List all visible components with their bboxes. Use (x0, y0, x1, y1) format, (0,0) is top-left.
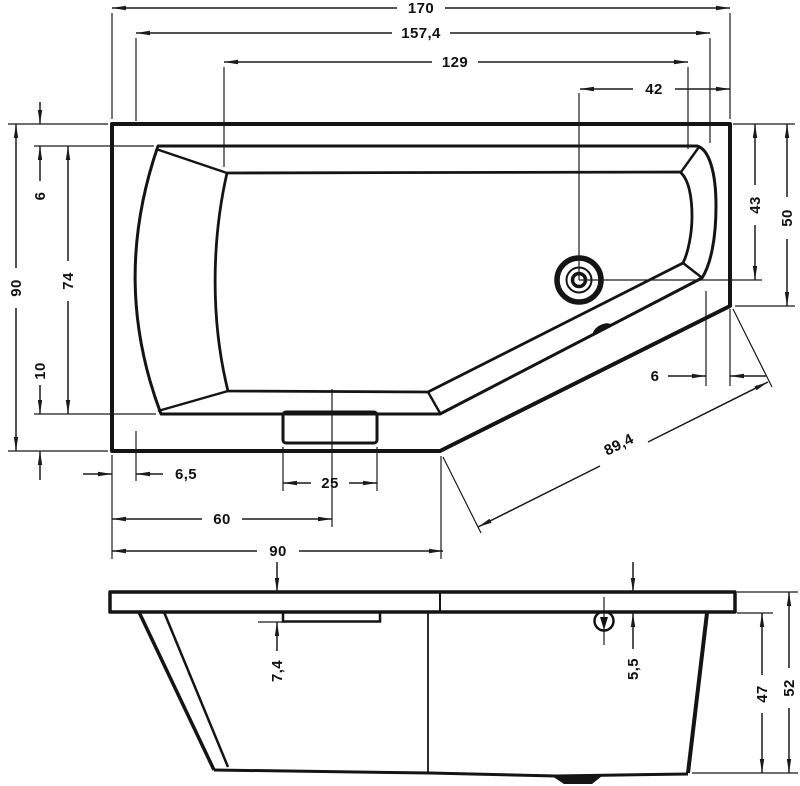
dim-panel-center-offset: 60 (112, 511, 332, 528)
dim-label: 5,5 (625, 658, 642, 680)
dim-label: 157,4 (401, 25, 441, 42)
dim-label: 74 (60, 272, 77, 290)
front-view: 7,4 5,5 47 52 (110, 562, 798, 784)
dim-bowl-width: 129 (224, 54, 688, 71)
faucet-hole-marker (595, 597, 614, 645)
dim-total-height: 52 (781, 592, 798, 773)
technical-drawing-canvas: 170 157,4 129 42 90 74 (0, 0, 800, 786)
bathtub-drawing: 170 157,4 129 42 90 74 (0, 0, 800, 786)
dim-overall-depth: 90 (8, 124, 25, 451)
front-view-extension-lines (258, 592, 798, 773)
dim-rim-thickness: 5,5 (625, 562, 642, 680)
dim-label: 90 (8, 279, 25, 297)
dim-label: 6 (651, 368, 660, 385)
dim-diagonal-rim-width: 6 (651, 368, 766, 385)
dim-overall-width: 170 (112, 0, 730, 17)
dim-bowl-opening-depth: 74 (60, 146, 77, 414)
dim-label: 42 (645, 81, 663, 98)
dim-rim-top-width: 6 (32, 102, 49, 200)
front-bottom-edge (214, 770, 688, 776)
dim-drain-from-right: 42 (580, 81, 730, 98)
dim-label: 7,4 (269, 660, 286, 682)
dim-bottom-edge-length: 90 (112, 543, 443, 560)
front-right-edge (688, 613, 707, 773)
dim-label: 47 (754, 685, 771, 703)
dim-right-side-height: 50 (779, 124, 796, 306)
dim-label: 25 (321, 475, 339, 492)
dim-label: 60 (213, 511, 231, 528)
dim-left-rim-width: 6,5 (83, 466, 197, 483)
dim-label: 10 (32, 362, 49, 380)
overflow-marker (590, 320, 613, 336)
dim-body-height: 47 (754, 613, 771, 773)
front-left-edge-outer (139, 612, 214, 770)
front-drain-boss (552, 776, 602, 784)
top-view: 170 157,4 129 42 90 74 (8, 0, 796, 560)
dim-rim-bottom-width: 10 (32, 362, 49, 480)
dim-drain-from-top: 43 (747, 124, 764, 280)
dim-label: 89,4 (601, 430, 636, 459)
dim-rim-width: 157,4 (136, 25, 710, 42)
dim-label: 129 (442, 54, 468, 71)
dim-label: 170 (408, 0, 434, 17)
dim-label: 50 (779, 209, 796, 227)
dim-label: 6 (32, 192, 49, 201)
front-left-edge-inner (164, 612, 228, 767)
front-rim-bar (110, 592, 735, 612)
dim-label: 6,5 (175, 466, 197, 483)
dim-panel-width: 25 (283, 475, 377, 492)
dim-label: 52 (781, 679, 798, 697)
dim-diagonal-edge-length: 89,4 (478, 382, 768, 527)
dim-label: 43 (747, 196, 764, 214)
dim-label: 90 (269, 543, 287, 560)
panel-box (283, 412, 377, 443)
top-view-extension-lines (8, 13, 795, 559)
